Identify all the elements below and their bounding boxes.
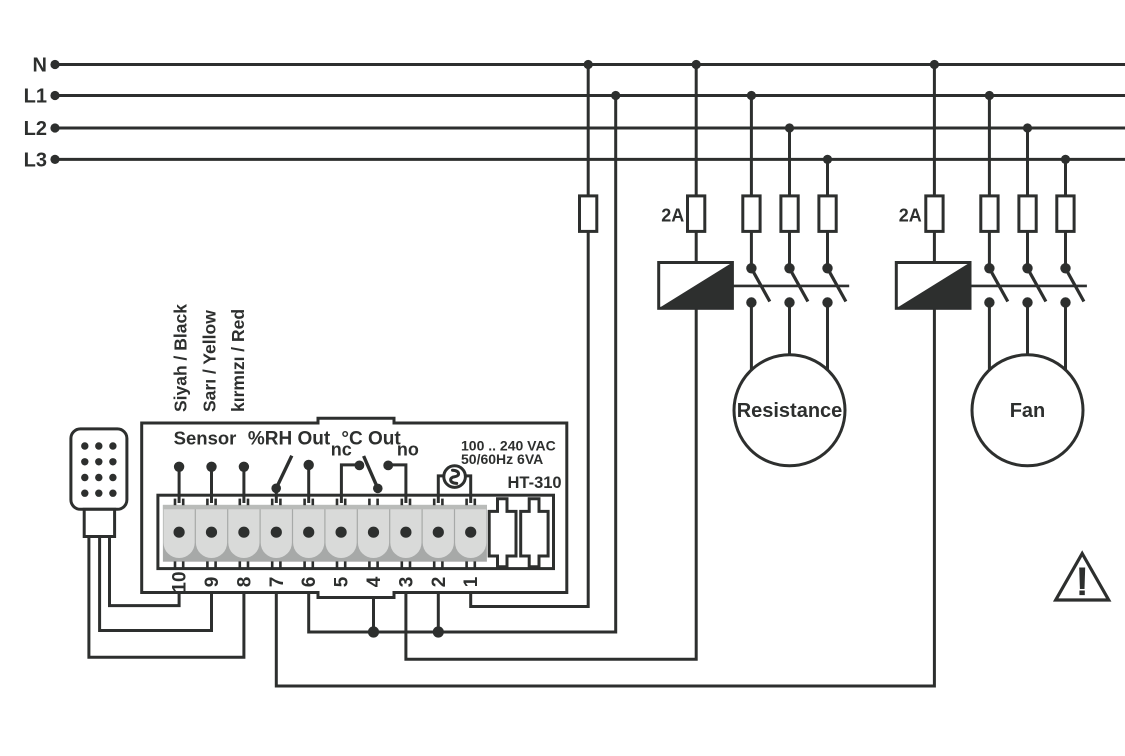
- svg-text:5: 5: [332, 576, 353, 587]
- svg-text:50/60Hz 6VA: 50/60Hz 6VA: [461, 451, 543, 467]
- svg-text:Sarı / Yellow: Sarı / Yellow: [199, 310, 219, 412]
- svg-text:9: 9: [202, 577, 223, 588]
- svg-text:no: no: [397, 440, 419, 460]
- svg-text:8: 8: [234, 577, 255, 588]
- svg-text:4: 4: [364, 576, 385, 587]
- svg-text:10: 10: [170, 571, 191, 592]
- svg-text:N: N: [33, 55, 47, 77]
- svg-text:%RH Out: %RH Out: [248, 429, 331, 450]
- svg-text:6: 6: [299, 577, 320, 588]
- svg-text:7: 7: [267, 577, 288, 588]
- svg-text:2A: 2A: [661, 206, 684, 226]
- svg-text:L2: L2: [24, 118, 47, 140]
- svg-text:Fan: Fan: [1010, 400, 1046, 422]
- svg-text:L3: L3: [24, 150, 47, 172]
- svg-text:2: 2: [429, 577, 450, 588]
- svg-text:Resistance: Resistance: [737, 400, 843, 422]
- svg-text:nc: nc: [331, 440, 352, 460]
- svg-text:1: 1: [461, 576, 482, 587]
- svg-text:HT-310: HT-310: [508, 474, 562, 492]
- svg-text:Siyah / Black: Siyah / Black: [171, 304, 191, 412]
- svg-text:3: 3: [396, 577, 417, 588]
- svg-text:kırmızı / Red: kırmızı / Red: [228, 309, 248, 412]
- svg-text:L1: L1: [24, 86, 47, 108]
- svg-text:Sensor: Sensor: [174, 428, 237, 449]
- svg-text:2A: 2A: [899, 206, 922, 226]
